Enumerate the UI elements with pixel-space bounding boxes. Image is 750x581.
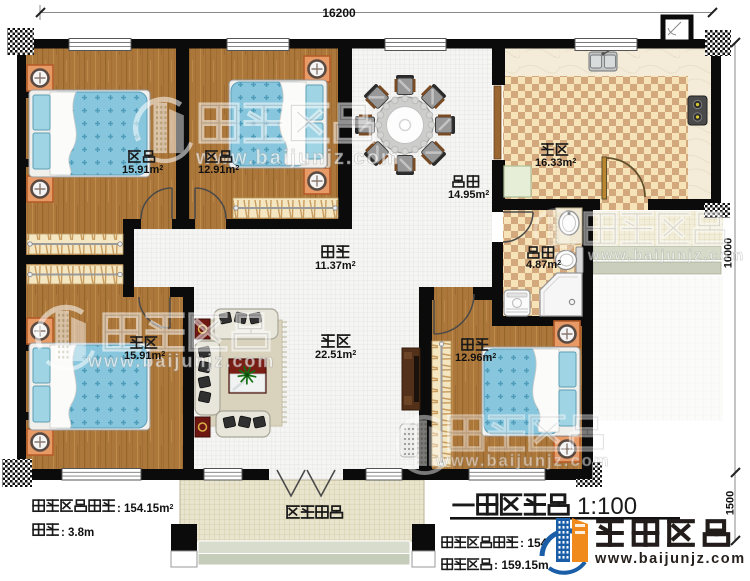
svg-text:12.91m2: 12.91m2 — [198, 164, 239, 176]
svg-text:11.37m2: 11.37m2 — [315, 260, 356, 272]
svg-text:www.baijunjz.com: www.baijunjz.com — [587, 248, 745, 264]
svg-text:15.91m2: 15.91m2 — [122, 164, 163, 176]
svg-text:4.87m2: 4.87m2 — [526, 259, 561, 271]
svg-text:: 159.15m: : 159.15m — [494, 558, 549, 572]
svg-text:12.96m2: 12.96m2 — [455, 352, 496, 364]
svg-text:16.33m2: 16.33m2 — [535, 157, 576, 169]
svg-text:1:100: 1:100 — [577, 493, 637, 520]
svg-text:22.51m2: 22.51m2 — [315, 349, 356, 361]
svg-text:16200: 16200 — [322, 6, 356, 20]
svg-text:: 3.8m: : 3.8m — [61, 527, 94, 539]
svg-text:www.baijunjz.com: www.baijunjz.com — [87, 351, 275, 371]
svg-text:15.91m2: 15.91m2 — [124, 350, 165, 362]
svg-text:www.baijunjz.com: www.baijunjz.com — [435, 452, 610, 470]
svg-text:14.95m2: 14.95m2 — [448, 189, 489, 201]
svg-text:www.baijunjz.com: www.baijunjz.com — [594, 551, 746, 567]
svg-text:1500: 1500 — [725, 491, 737, 515]
svg-text:: 154.15m2: : 154.15m2 — [117, 503, 173, 515]
